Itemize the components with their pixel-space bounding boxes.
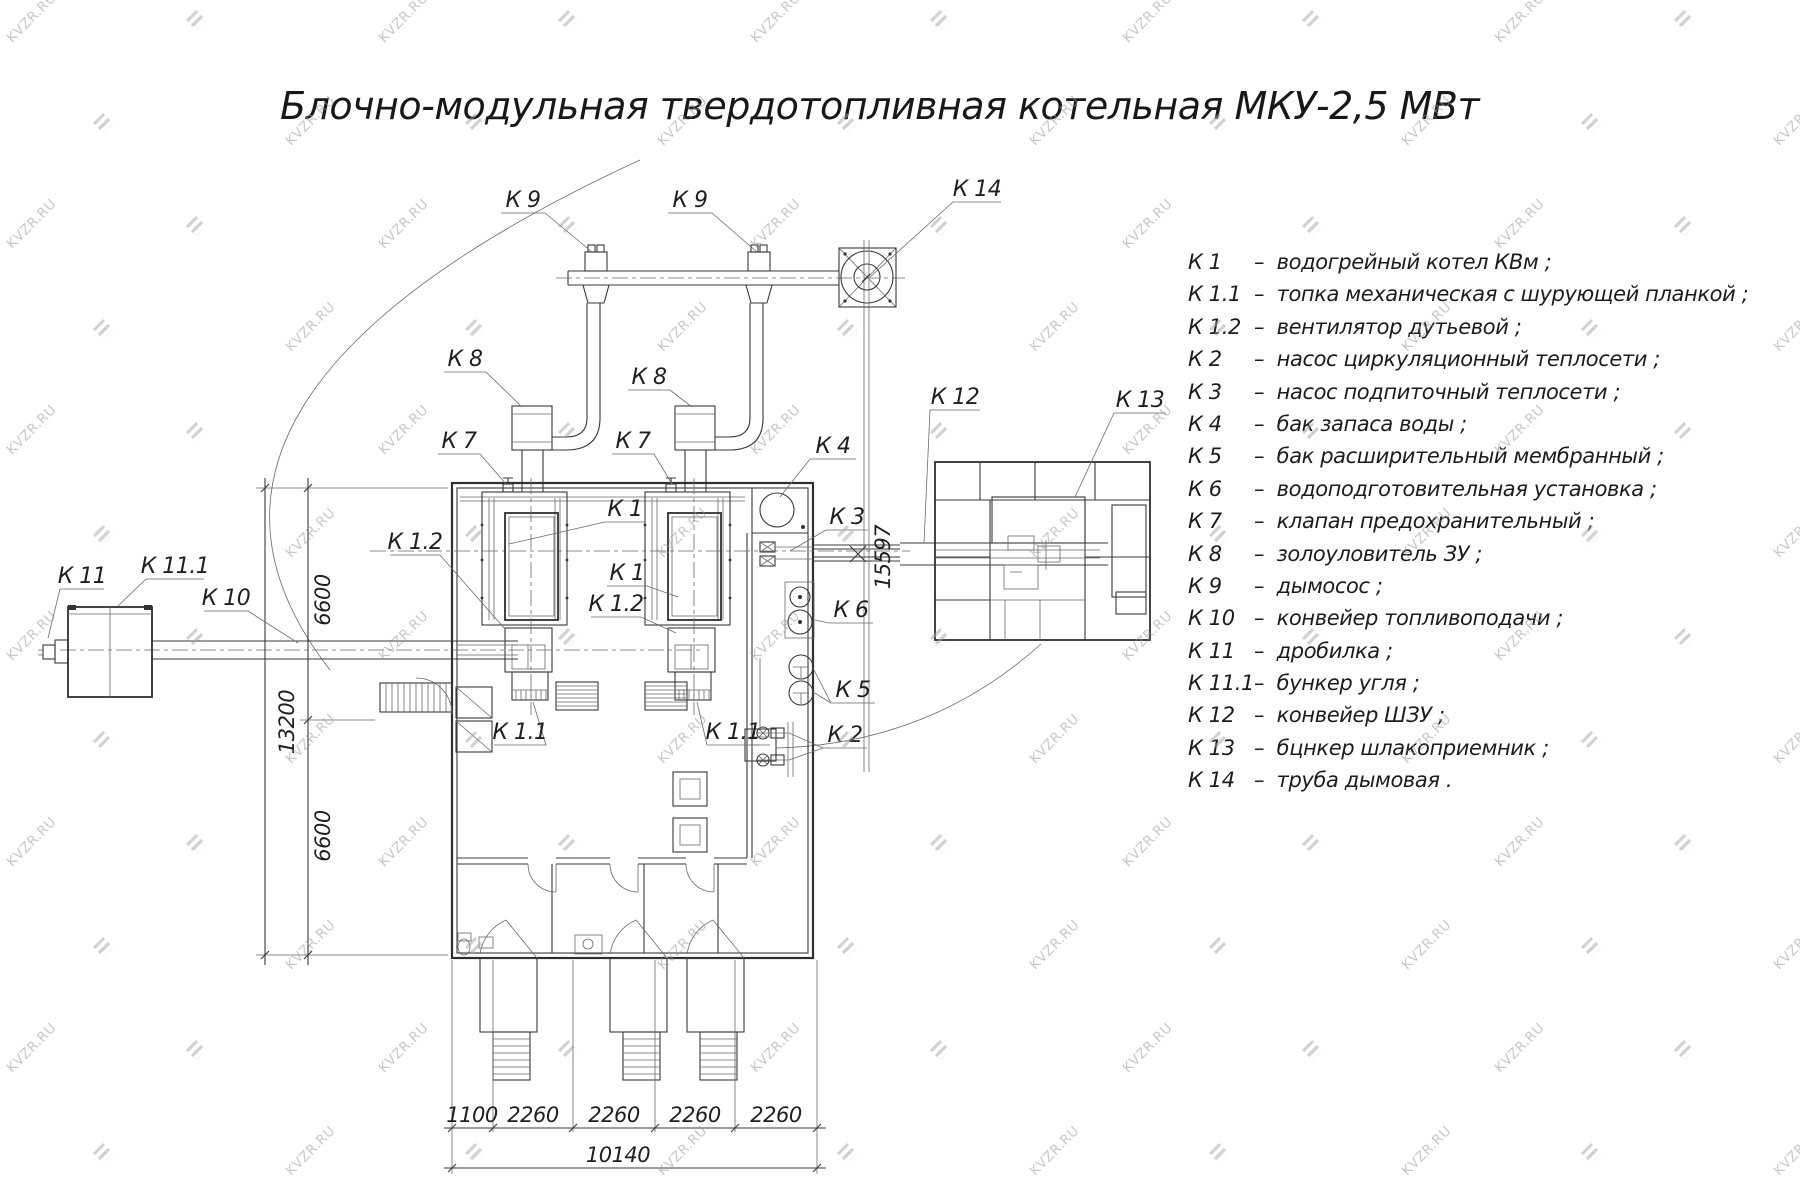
- drawing-sheet: К 9 К 9 К 14 К 8 К 8 К 7 К 7 К 4 К 3 К 1…: [0, 0, 1800, 1200]
- callout-k14: К 14: [953, 177, 1002, 202]
- dim-bottom-0: 1100: [446, 1103, 498, 1127]
- legend-desc: – конвейер топливоподачи ;: [1254, 606, 1563, 630]
- legend-item-k5: К 5– бак расширительный мембранный ;: [1188, 444, 1748, 476]
- legend-item-k12: К 12– конвейер ШЗУ ;: [1188, 703, 1748, 735]
- legend-item-k6: К 6– водоподготовительная установка ;: [1188, 477, 1748, 509]
- legend-desc: – дробилка ;: [1254, 639, 1393, 663]
- boiler-2: [644, 478, 732, 715]
- legend-desc: – насос подпиточный теплосети ;: [1254, 380, 1620, 404]
- legend-desc: – золоуловитель ЗУ ;: [1254, 542, 1482, 566]
- legend-code: К 11: [1188, 639, 1254, 663]
- callout-k7-2: К 7: [615, 429, 651, 454]
- legend-code: К 14: [1188, 768, 1254, 792]
- dim-bottom-4: 2260: [750, 1103, 802, 1127]
- legend-code: К 13: [1188, 736, 1254, 760]
- fuel-conveyor-K10: [60, 641, 700, 659]
- callout-k1-1: К 1: [607, 497, 642, 522]
- wtp-K6: [785, 582, 814, 638]
- callout-k9-2: К 9: [672, 188, 707, 213]
- legend-code: К 10: [1188, 606, 1254, 630]
- callout-k1.2-2: К 1.2: [588, 592, 643, 617]
- callout-k8-1: К 8: [447, 347, 483, 372]
- callout-k7-1: К 7: [441, 429, 477, 454]
- callout-k6: К 6: [833, 598, 869, 623]
- legend-desc: – топка механическая с шурующей планкой …: [1254, 282, 1748, 306]
- legend-code: К 12: [1188, 703, 1254, 727]
- legend-item-k2: К 2– насос циркуляционный теплосети ;: [1188, 347, 1748, 379]
- legend-desc: – насос циркуляционный теплосети ;: [1254, 347, 1660, 371]
- legend-code: К 8: [1188, 542, 1254, 566]
- legend-item-k4: К 4– бак запаса воды ;: [1188, 412, 1748, 444]
- legend-item-k7: К 7– клапан предохранительный ;: [1188, 509, 1748, 541]
- callout-k9-1: К 9: [505, 188, 540, 213]
- expansion-tanks-K5: [789, 655, 813, 705]
- coal-bunker-K11-1: [68, 605, 152, 697]
- callout-k10: К 10: [202, 586, 251, 611]
- callout-k13: К 13: [1116, 388, 1165, 413]
- dim-left-upper: 6600: [311, 574, 335, 626]
- legend-item-k10: К 10– конвейер топливоподачи ;: [1188, 606, 1748, 638]
- dim-bottom-total: 10140: [586, 1143, 650, 1167]
- legend-desc: – труба дымовая .: [1254, 768, 1452, 792]
- dimension-lines: [256, 240, 870, 1174]
- legend-code: К 11.1: [1188, 671, 1254, 695]
- legend-item-k1.2: К 1.2– вентилятор дутьевой ;: [1188, 315, 1748, 347]
- slag-bunker-K13: [900, 462, 1150, 640]
- callout-k1.1-2: К 1.1: [705, 720, 760, 745]
- grate-2: [645, 682, 687, 710]
- building-plan: [370, 483, 910, 958]
- legend-desc: – бак расширительный мембранный ;: [1254, 444, 1664, 468]
- callout-k2: К 2: [827, 723, 862, 748]
- legend-desc: – конвейер ШЗУ ;: [1254, 703, 1445, 727]
- legend-code: К 3: [1188, 380, 1254, 404]
- legend-item-k1: К 1– водогрейный котел КВм ;: [1188, 250, 1748, 282]
- callout-k5: К 5: [835, 678, 870, 703]
- callout-k1-2: К 1: [609, 561, 644, 586]
- dim-right-height: 15597: [871, 524, 895, 589]
- dim-bottom-3: 2260: [669, 1103, 721, 1127]
- callout-k11: К 11: [58, 564, 107, 589]
- ash-collector-2: [675, 406, 715, 492]
- legend-item-k8: К 8– золоуловитель ЗУ ;: [1188, 542, 1748, 574]
- ash-collector-1: [512, 406, 552, 492]
- callout-k1.1-1: К 1.1: [492, 720, 547, 745]
- legend-desc: – водоподготовительная установка ;: [1254, 477, 1657, 501]
- legend-desc: – вентилятор дутьевой ;: [1254, 315, 1521, 339]
- legend-item-k11.1: К 11.1– бункер угля ;: [1188, 671, 1748, 703]
- legend-item-k1.1: К 1.1– топка механическая с шурующей пла…: [1188, 282, 1748, 314]
- callout-k3: К 3: [829, 505, 864, 530]
- callout-k11.1: К 11.1: [141, 554, 210, 579]
- legend-code: К 6: [1188, 477, 1254, 501]
- chimney: [839, 248, 896, 307]
- legend-desc: – дымосос ;: [1254, 574, 1383, 598]
- pumps-K2: [756, 722, 793, 777]
- dim-left-lower: 6600: [311, 810, 335, 862]
- legend-code: К 9: [1188, 574, 1254, 598]
- boiler-1: [481, 478, 569, 715]
- grate-1: [556, 682, 598, 710]
- legend-item-k11: К 11– дробилка ;: [1188, 639, 1748, 671]
- legend-code: К 1: [1188, 250, 1254, 274]
- callout-k1.2-1: К 1.2: [387, 530, 442, 555]
- drawing-title: Блочно-модульная твердотопливная котельн…: [280, 84, 1460, 128]
- legend: К 1– водогрейный котел КВм ; К 1.1– топк…: [1188, 250, 1748, 801]
- legend-code: К 2: [1188, 347, 1254, 371]
- water-tank-K4: [760, 493, 805, 529]
- electrical-cabinets: [456, 687, 707, 852]
- dim-bottom-1: 2260: [507, 1103, 559, 1127]
- callout-k8-2: К 8: [631, 365, 667, 390]
- legend-item-k14: К 14– труба дымовая .: [1188, 768, 1748, 800]
- legend-desc: – водогрейный котел КВм ;: [1254, 250, 1551, 274]
- dim-left-total: 13200: [275, 690, 299, 754]
- legend-desc: – бункер угля ;: [1254, 671, 1419, 695]
- legend-code: К 7: [1188, 509, 1254, 533]
- legend-item-k9: К 9– дымосос ;: [1188, 574, 1748, 606]
- entrance-3: [687, 920, 744, 1080]
- legend-desc: – бцнкер шлакоприемник ;: [1254, 736, 1549, 760]
- callout-leaders: [48, 202, 1166, 760]
- legend-item-k3: К 3– насос подпиточный теплосети ;: [1188, 380, 1748, 412]
- entrance-2: [610, 920, 667, 1080]
- callout-k4: К 4: [815, 434, 850, 459]
- legend-code: К 1.2: [1188, 315, 1254, 339]
- legend-code: К 1.1: [1188, 282, 1254, 306]
- legend-desc: – бак запаса воды ;: [1254, 412, 1467, 436]
- legend-desc: – клапан предохранительный ;: [1254, 509, 1594, 533]
- callout-k12: К 12: [931, 385, 980, 410]
- crusher-K11: [38, 640, 68, 663]
- entrance-1: [480, 920, 537, 1080]
- legend-code: К 5: [1188, 444, 1254, 468]
- furniture: [575, 935, 602, 954]
- k12-drive: [745, 658, 776, 761]
- sanitary-fixtures: [458, 933, 493, 955]
- construction-arc-right: [776, 644, 1041, 748]
- smoke-exhauster-2: [748, 245, 770, 271]
- legend-item-k13: К 13– бцнкер шлакоприемник ;: [1188, 736, 1748, 768]
- legend-code: К 4: [1188, 412, 1254, 436]
- dim-bottom-2: 2260: [588, 1103, 640, 1127]
